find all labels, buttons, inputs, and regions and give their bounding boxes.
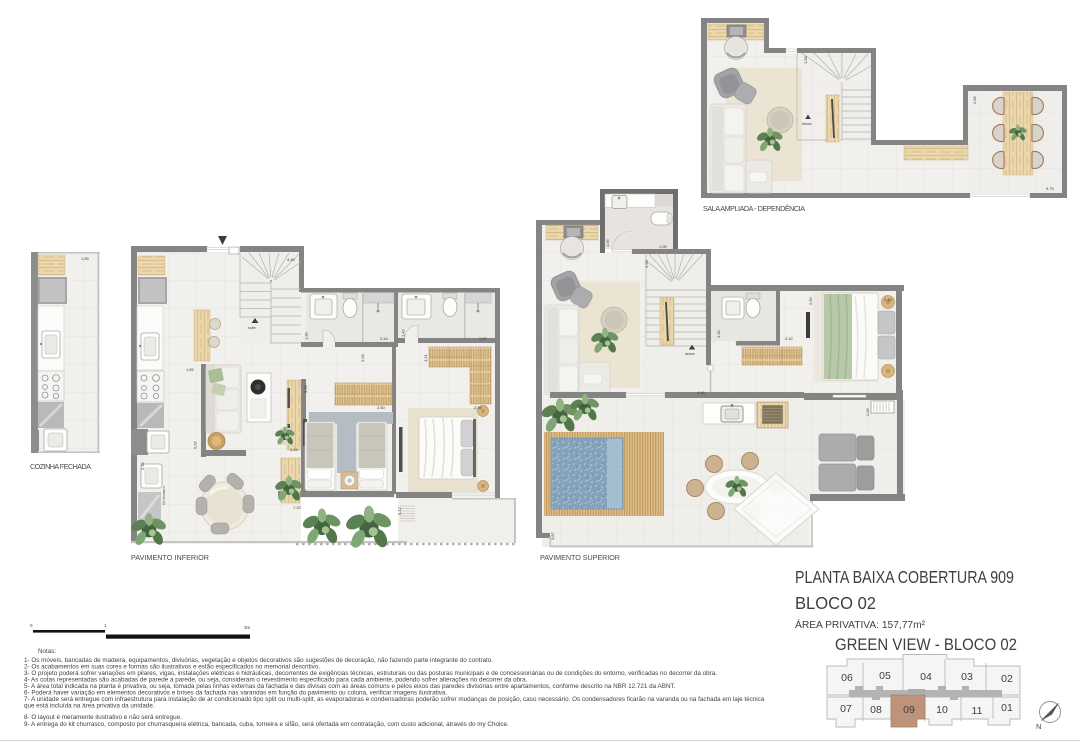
svg-text:ÁREA PRIVATIVA: 157,77m²: ÁREA PRIVATIVA: 157,77m²: [795, 618, 925, 631]
svg-text:4,46: 4,46: [697, 390, 706, 395]
svg-text:2,50: 2,50: [377, 405, 386, 410]
svg-text:desce: desce: [802, 122, 812, 126]
svg-text:9,75: 9,75: [1046, 186, 1055, 191]
svg-text:06: 06: [841, 672, 853, 684]
svg-text:05: 05: [879, 670, 891, 682]
svg-text:03: 03: [961, 671, 973, 683]
svg-text:2,57: 2,57: [479, 336, 488, 341]
svg-text:07: 07: [840, 703, 852, 715]
svg-text:3m: 3m: [244, 625, 251, 630]
svg-text:01: 01: [1001, 702, 1013, 714]
svg-text:1,56: 1,56: [605, 238, 610, 247]
svg-text:1,65: 1,65: [186, 367, 195, 372]
svg-text:1,65: 1,65: [81, 256, 90, 261]
svg-text:2,59: 2,59: [474, 405, 483, 410]
svg-text:0,93: 0,93: [360, 353, 365, 362]
svg-text:1,30: 1,30: [716, 329, 721, 338]
svg-text:sobe: sobe: [248, 326, 256, 330]
svg-text:PAVIMENTO SUPERIOR: PAVIMENTO SUPERIOR: [540, 553, 620, 562]
svg-text:2,35: 2,35: [140, 461, 145, 470]
svg-text:10: 10: [936, 704, 948, 716]
svg-text:3,87: 3,87: [550, 531, 555, 540]
svg-text:1,42: 1,42: [401, 328, 406, 337]
svg-text:02: 02: [1001, 673, 1013, 685]
svg-text:2,44: 2,44: [380, 336, 389, 341]
svg-text:2,66: 2,66: [865, 407, 870, 416]
svg-text:4,40: 4,40: [287, 257, 296, 262]
svg-text:7,20: 7,20: [293, 505, 302, 510]
svg-text:Notas:: Notas:: [38, 648, 56, 655]
svg-text:N: N: [1036, 722, 1041, 731]
svg-text:4,21: 4,21: [423, 353, 428, 362]
svg-text:PLANTA BAIXA COBERTURA 909: PLANTA BAIXA COBERTURA 909: [795, 567, 1014, 587]
svg-text:9,64: 9,64: [578, 403, 587, 408]
svg-text:2,42: 2,42: [785, 336, 794, 341]
svg-text:04: 04: [920, 671, 932, 683]
svg-text:11: 11: [972, 705, 983, 717]
svg-text:09: 09: [903, 704, 915, 716]
svg-text:2,86: 2,86: [972, 95, 977, 104]
svg-text:que está incluída na área priv: que está incluída na área privativa da u…: [24, 703, 155, 710]
svg-text:PAVIMENTO INFERIOR: PAVIMENTO INFERIOR: [131, 553, 209, 562]
svg-text:COZINHA FECHADA: COZINHA FECHADA: [30, 462, 91, 471]
svg-text:9- A entrega do kit churrasco,: 9- A entrega do kit churrasco, composto …: [24, 721, 509, 728]
svg-text:2,64: 2,64: [290, 447, 299, 452]
svg-text:GREEN VIEW - BLOCO 02: GREEN VIEW - BLOCO 02: [835, 636, 1017, 654]
svg-text:8- O layout é meramente ilustr: 8- O layout é meramente ilustrativo e nã…: [24, 714, 182, 721]
svg-text:2,90: 2,90: [808, 296, 813, 305]
svg-text:08: 08: [870, 704, 882, 716]
svg-text:2,46: 2,46: [884, 297, 893, 302]
svg-text:BLOCO 02: BLOCO 02: [795, 593, 876, 613]
svg-text:3,20: 3,20: [303, 384, 308, 393]
svg-text:1,90: 1,90: [659, 244, 668, 249]
svg-text:SALA AMPLIADA - DEPENDÊNCIA: SALA AMPLIADA - DEPENDÊNCIA: [703, 204, 805, 213]
svg-text:Kit churrasco: Kit churrasco: [162, 486, 166, 505]
svg-text:3,98: 3,98: [644, 259, 649, 268]
svg-text:5,12: 5,12: [397, 506, 402, 515]
svg-text:1,30: 1,30: [304, 331, 309, 340]
svg-text:1,58: 1,58: [803, 55, 808, 64]
svg-text:desce: desce: [685, 352, 695, 356]
svg-text:5,62: 5,62: [193, 440, 198, 449]
